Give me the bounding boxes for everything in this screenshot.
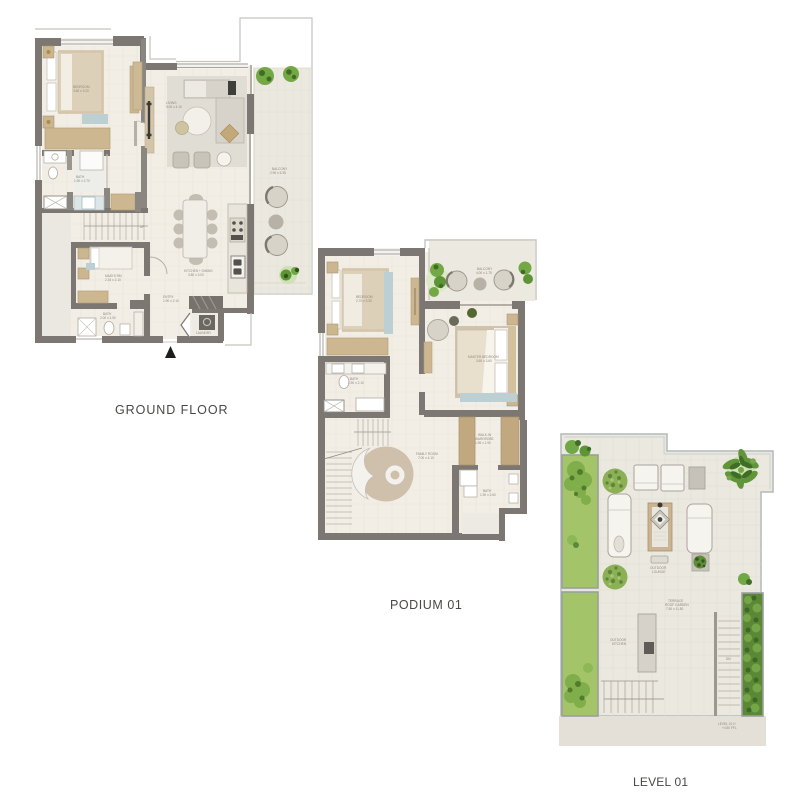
svg-text:1.90 x 2.60: 1.90 x 2.60 [480, 493, 496, 497]
svg-text:3.60 x 3.60: 3.60 x 3.60 [476, 359, 492, 363]
svg-text:2.90 x 5.35: 2.90 x 5.35 [270, 171, 286, 175]
svg-text:DN: DN [726, 657, 731, 661]
svg-text:5.00 x 4.10: 5.00 x 4.10 [166, 105, 182, 109]
svg-text:PODIUM 01: PODIUM 01 [390, 598, 462, 612]
svg-text:3.80 x 3.00: 3.80 x 3.00 [188, 273, 204, 277]
svg-text:4.00 x 1.75: 4.00 x 1.75 [476, 271, 492, 275]
svg-text:2.15 x 2.10: 2.15 x 2.10 [105, 278, 121, 282]
svg-text:LAUNDRY: LAUNDRY [196, 331, 212, 335]
svg-text:2.00 x 1.50: 2.00 x 1.50 [100, 316, 116, 320]
svg-text:KITCHEN: KITCHEN [612, 642, 627, 646]
svg-text:UP: UP [140, 225, 144, 229]
svg-text:+4.50 FFL: +4.50 FFL [722, 726, 737, 730]
svg-text:1.95 x 1.90: 1.95 x 1.90 [475, 441, 491, 445]
svg-text:2.70 x 3.30: 2.70 x 3.30 [356, 299, 372, 303]
svg-text:1.90 x 2.70: 1.90 x 2.70 [74, 179, 90, 183]
svg-text:1.90 x 2.10: 1.90 x 2.10 [163, 299, 179, 303]
svg-text:LOUNGE: LOUNGE [652, 570, 665, 574]
svg-text:3.60 x 3.20: 3.60 x 3.20 [73, 89, 89, 93]
svg-text:1.90 x 2.10: 1.90 x 2.10 [348, 381, 364, 385]
svg-text:7.00 x 4.10: 7.00 x 4.10 [418, 456, 434, 460]
svg-text:GROUND FLOOR: GROUND FLOOR [115, 403, 229, 417]
svg-text:7.50 x 11.50: 7.50 x 11.50 [666, 607, 684, 611]
svg-text:LEVEL 01: LEVEL 01 [633, 775, 688, 789]
